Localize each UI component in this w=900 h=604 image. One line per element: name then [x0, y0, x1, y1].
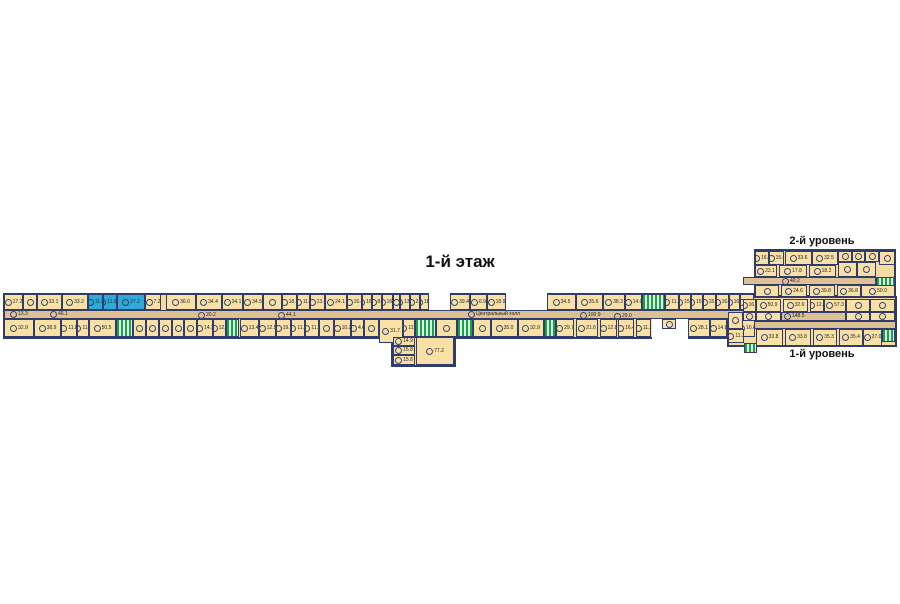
- room-number-icon: [213, 325, 218, 332]
- room: 15.6: [691, 294, 703, 310]
- room-area-label: 12.5: [267, 326, 276, 331]
- room-number-icon: [863, 266, 870, 273]
- room-number-icon: [884, 255, 891, 262]
- room-number-icon: [395, 347, 402, 354]
- room-area-label: 34.4: [208, 300, 218, 305]
- room-number-icon: [729, 299, 733, 306]
- room: 15.0: [769, 251, 784, 265]
- room-number-icon: [879, 302, 886, 309]
- room-area-label: 17.8: [792, 269, 802, 274]
- room: 15.5: [679, 294, 691, 310]
- room-number-icon: [468, 311, 475, 318]
- room-number-icon: [625, 299, 632, 306]
- room-number-icon: [855, 302, 862, 309]
- room: 8.5: [372, 294, 382, 310]
- room-number-icon: [765, 313, 772, 320]
- room-area-label: 15.6: [696, 300, 703, 305]
- room-number-icon: [426, 348, 433, 355]
- room-area-label: 35.4: [850, 335, 860, 340]
- room: 50.0: [861, 285, 895, 297]
- room-number-icon: [94, 325, 101, 332]
- room-area-label: 33.6: [798, 256, 808, 261]
- room: [133, 319, 146, 337]
- room-number-icon: [103, 299, 106, 306]
- room-number-icon: [605, 299, 612, 306]
- room: 36.8: [837, 285, 861, 297]
- room-number-icon: [488, 299, 495, 306]
- room-area-label: 11.5: [95, 300, 103, 305]
- room-number-icon: [297, 299, 302, 306]
- room: 12.5: [259, 319, 276, 337]
- room: 33.8: [785, 329, 811, 346]
- room: [473, 319, 491, 337]
- room-area-label: 27.0: [872, 335, 882, 340]
- room-area-label: 50.0: [877, 289, 887, 294]
- room-number-icon: [769, 255, 775, 262]
- room: [364, 319, 379, 337]
- room-area-label: 39.4: [459, 300, 469, 305]
- room: [159, 319, 172, 337]
- corridor-label: 20.2: [198, 312, 216, 319]
- corridor-label: 46.1: [50, 311, 68, 318]
- room-area-label: 32.6: [795, 303, 805, 308]
- room-number-icon: [410, 299, 415, 306]
- room: 35.0: [491, 319, 518, 337]
- room-area-label: 33.8: [769, 335, 779, 340]
- room: [662, 319, 676, 329]
- room: 13.8: [400, 294, 410, 310]
- room-number-icon: [224, 299, 231, 306]
- room-area-label: 38.3: [613, 300, 623, 305]
- room-number-icon: [420, 299, 423, 306]
- room: 11.8: [61, 319, 77, 337]
- room-area-label: 11.2: [671, 300, 679, 305]
- room-area-label: 15.5: [684, 300, 691, 305]
- room: 10.2: [334, 319, 351, 337]
- room-number-icon: [175, 325, 182, 332]
- stairs: [642, 294, 665, 310]
- stairs: [226, 319, 239, 337]
- room: 16.4: [618, 319, 634, 337]
- room-number-icon: [305, 325, 310, 332]
- room-number-icon: [757, 268, 764, 275]
- room-area-label: 77.2: [434, 349, 444, 354]
- room-number-icon: [869, 288, 876, 295]
- room-number-icon: [691, 299, 695, 306]
- room-area-label: 11.8: [68, 326, 77, 331]
- room-highlighted[interactable]: 11.8/1: [103, 294, 117, 310]
- room-area-label: 11.7: [424, 300, 429, 305]
- room-number-icon: [580, 312, 587, 319]
- room-area-label: 50.5: [102, 326, 112, 331]
- room-number-icon: [703, 299, 708, 306]
- room-number-icon: [50, 311, 57, 318]
- room: [857, 262, 876, 277]
- room-area-label: 29.7: [564, 326, 574, 331]
- room: 22.1: [755, 265, 777, 277]
- room-area-label: 15.0: [776, 256, 784, 261]
- room-number-icon: [471, 299, 478, 306]
- room-number-icon: [66, 299, 73, 306]
- room-highlighted[interactable]: 11.5: [88, 294, 103, 310]
- room-area-label: 13.5: [317, 300, 325, 305]
- room: [846, 312, 870, 321]
- room-area-label: 31.7: [390, 329, 400, 334]
- room-area-label: 18.3: [289, 300, 297, 305]
- room-number-icon: [710, 325, 717, 332]
- room-number-icon: [666, 321, 673, 328]
- room-number-icon: [347, 299, 353, 306]
- room: 17.2: [4, 294, 23, 310]
- room-area-label: 16.4: [354, 300, 362, 305]
- room: 2.5: [410, 294, 420, 310]
- room-number-icon: [443, 325, 450, 332]
- corridor-area-label: 29.0: [622, 314, 632, 319]
- room-area-label: 35.0: [504, 326, 514, 331]
- room-area-label: 57.3: [834, 303, 844, 308]
- room-area-label: 16.4: [625, 326, 634, 331]
- room: 24.1: [325, 294, 347, 310]
- room-number-icon: [760, 302, 767, 309]
- room: [846, 299, 870, 312]
- corridor-label: 13.3: [10, 311, 28, 318]
- corridor-area-label: 148.5: [792, 314, 805, 319]
- room-area-label: 22.1: [765, 269, 775, 274]
- room-area-label: 35.3: [824, 335, 834, 340]
- room-area-label: 6.9: [479, 300, 486, 305]
- room-number-icon: [556, 325, 563, 332]
- room: 15.8: [393, 346, 415, 355]
- room-number-icon: [869, 253, 876, 260]
- room: 32.9: [518, 319, 544, 337]
- room-area-label: 32.9: [18, 326, 28, 331]
- room-area-label: 24.1: [335, 300, 345, 305]
- room-number-icon: [146, 299, 153, 306]
- room: 11.2: [291, 319, 305, 337]
- room: 11.7: [305, 319, 319, 337]
- room: 12.5: [213, 319, 226, 337]
- room: 29.7: [556, 319, 574, 337]
- room: [436, 319, 457, 337]
- room-number-icon: [842, 253, 849, 260]
- room: 7.2: [145, 294, 161, 310]
- room: 36.0: [166, 294, 196, 310]
- room-number-icon: [122, 299, 129, 306]
- room: 33.2: [62, 294, 88, 310]
- room-number-icon: [816, 255, 823, 262]
- room: 38.3: [603, 294, 625, 310]
- room-number-icon: [323, 325, 330, 332]
- room-number-icon: [496, 325, 503, 332]
- room: 16.4: [347, 294, 362, 310]
- room: [728, 312, 743, 329]
- room: 33.1: [37, 294, 62, 310]
- room: [870, 312, 895, 321]
- corridor: [4, 310, 756, 319]
- room-number-icon: [244, 299, 251, 306]
- room-number-icon: [732, 317, 739, 324]
- room: 11.9: [297, 294, 310, 310]
- room: 11.3: [728, 329, 744, 343]
- room-area-label: 50.9: [768, 303, 778, 308]
- room: 32.9: [4, 319, 34, 337]
- room-number-icon: [39, 325, 46, 332]
- room-area-label: 37.2: [130, 300, 140, 305]
- room-number-icon: [755, 255, 760, 262]
- room: 11.2: [636, 319, 651, 337]
- room: 35.4: [839, 329, 863, 346]
- corridor-label: Центральный холл: [468, 311, 520, 318]
- room-number-icon: [88, 299, 94, 306]
- corridor: [743, 277, 876, 285]
- corridor-area-label: Центральный холл: [476, 312, 520, 317]
- room: 18.9: [487, 294, 506, 310]
- room: [865, 251, 879, 262]
- room-number-icon: [787, 302, 794, 309]
- room: 39.4: [450, 294, 470, 310]
- room-number-icon: [282, 299, 288, 306]
- room: [184, 319, 197, 337]
- room: 35.3: [813, 329, 837, 346]
- floor-plan: 17.233.133.211.511.8/137.27.236.034.434.…: [0, 0, 900, 604]
- room-number-icon: [581, 299, 588, 306]
- room-area-label: 38.9: [47, 326, 57, 331]
- room-area-label: 16.6: [746, 326, 755, 331]
- room-area-label: 19.1: [283, 326, 291, 331]
- room: 57.3: [824, 299, 846, 312]
- room: 18.2: [809, 265, 836, 277]
- room-number-icon: [362, 299, 365, 306]
- room-area-label: 11.2: [643, 326, 651, 331]
- room-number-icon: [813, 288, 820, 295]
- room: 11.2: [665, 294, 679, 310]
- room: 28.1: [688, 319, 710, 337]
- room-number-icon: [382, 299, 386, 306]
- room-area-label: 14.8: [718, 326, 727, 331]
- room-number-icon: [784, 268, 791, 275]
- room-area-label: 11.2: [297, 326, 305, 331]
- room-number-icon: [10, 325, 17, 332]
- room: 14.3: [197, 319, 213, 337]
- room: 13.4: [240, 319, 259, 337]
- room-number-icon: [77, 325, 81, 332]
- room-area-label: 33.8: [797, 335, 807, 340]
- room-area-label: 11.8/1: [107, 300, 117, 305]
- room-area-label: 32.9: [530, 326, 540, 331]
- room-number-icon: [855, 313, 862, 320]
- room-highlighted[interactable]: 37.2: [117, 294, 145, 310]
- room: 21.6: [576, 319, 598, 337]
- room-area-label: 18.2: [822, 269, 832, 274]
- room-number-icon: [636, 325, 642, 332]
- room: [838, 251, 852, 262]
- room-area-label: 15.1: [709, 300, 716, 305]
- room-area-label: 34.5: [561, 300, 571, 305]
- room-area-label: 12.5: [219, 326, 226, 331]
- room-number-icon: [864, 334, 871, 341]
- room-number-icon: [27, 299, 34, 306]
- room-number-icon: [716, 299, 721, 306]
- room-number-icon: [690, 325, 697, 332]
- room-number-icon: [351, 325, 357, 332]
- room-area-label: 32.5: [824, 256, 834, 261]
- room: 32.6: [783, 299, 808, 312]
- room: 16.1: [755, 251, 769, 265]
- corridor-area-label: 13.3: [18, 312, 28, 317]
- room-area-label: 11.9: [303, 300, 310, 305]
- room: [870, 299, 895, 312]
- room-number-icon: [879, 313, 886, 320]
- room: 33.6: [785, 251, 812, 265]
- room-area-label: 35.6: [589, 300, 599, 305]
- room-number-icon: [810, 302, 815, 309]
- room-number-icon: [372, 299, 377, 306]
- room: 15.8: [393, 355, 415, 365]
- room: 6.9: [470, 294, 487, 310]
- room: [852, 251, 865, 262]
- room: [319, 319, 334, 337]
- room-number-icon: [814, 268, 821, 275]
- room-number-icon: [10, 311, 17, 318]
- room-number-icon: [200, 299, 207, 306]
- room: 16.4: [743, 299, 756, 312]
- room-number-icon: [278, 312, 285, 319]
- room-area-label: 14.0: [633, 300, 642, 305]
- room: 12.2: [810, 299, 824, 312]
- opening: [506, 293, 547, 310]
- room-number-icon: [600, 325, 607, 332]
- room-number-icon: [784, 313, 791, 320]
- room-number-icon: [291, 325, 296, 332]
- room-area-label: 17.2: [13, 300, 23, 305]
- stairs: [415, 319, 436, 337]
- room: 34.5: [547, 294, 576, 310]
- corridor-area-label: 100.9: [588, 313, 601, 318]
- room-number-icon: [789, 334, 796, 341]
- room-number-icon: [785, 288, 792, 295]
- room: 34.1: [222, 294, 243, 310]
- stairs: [116, 319, 133, 337]
- room-number-icon: [269, 299, 276, 306]
- room-number-icon: [842, 334, 849, 341]
- room-number-icon: [826, 302, 833, 309]
- room-area-label: 36.8: [848, 289, 858, 294]
- room: 34.5: [243, 294, 263, 310]
- room: 32.5: [812, 251, 838, 265]
- room-number-icon: [61, 325, 67, 332]
- room-number-icon: [403, 325, 407, 332]
- room: 4.6: [351, 319, 364, 337]
- room: [838, 262, 857, 277]
- room-number-icon: [451, 299, 458, 306]
- room: 18.3: [282, 294, 297, 310]
- room: 16.3: [729, 294, 740, 310]
- room-number-icon: [259, 325, 266, 332]
- room-area-label: 39.8: [821, 289, 831, 294]
- room: 16.4: [362, 294, 372, 310]
- room-number-icon: [614, 313, 621, 320]
- room-number-icon: [241, 325, 248, 332]
- room-number-icon: [553, 299, 560, 306]
- room-area-label: 21.6: [586, 326, 596, 331]
- room: 14.8: [710, 319, 727, 337]
- room-number-icon: [198, 312, 205, 319]
- room-area-label: 16.1: [722, 300, 729, 305]
- room: 35.6: [576, 294, 603, 310]
- room: 11.5: [403, 319, 415, 337]
- room: 33.8: [756, 329, 783, 346]
- room: 17.8: [779, 265, 807, 277]
- room-area-label: 16.4: [749, 303, 756, 308]
- room-area-label: 11.3: [735, 334, 744, 339]
- room: [755, 285, 779, 297]
- floor-plan-canvas: 1-й этаж 2-й уровень 1-й уровень 17.233.…: [0, 0, 900, 604]
- room: 11.7: [420, 294, 429, 310]
- room-number-icon: [728, 333, 734, 340]
- room: [879, 251, 895, 265]
- room-area-label: 14.9: [403, 339, 413, 344]
- room-number-icon: [679, 299, 683, 306]
- room: 14.9: [393, 337, 415, 346]
- stairs: [882, 329, 895, 342]
- room-area-label: 15.8: [403, 358, 413, 363]
- room-number-icon: [382, 328, 389, 335]
- room-area-label: 34.1: [232, 300, 242, 305]
- room: [263, 294, 282, 310]
- corridor-area-label: 40.2: [790, 279, 800, 284]
- room: 16.4: [382, 294, 393, 310]
- room-number-icon: [172, 299, 179, 306]
- room-area-label: 28.1: [698, 326, 708, 331]
- room-number-icon: [790, 255, 797, 262]
- room-number-icon: [197, 325, 203, 332]
- room: 16.1: [716, 294, 729, 310]
- room-number-icon: [764, 288, 771, 295]
- room-number-icon: [276, 325, 282, 332]
- room: 14.0: [625, 294, 642, 310]
- room-number-icon: [816, 334, 823, 341]
- room-area-label: 18.9: [496, 300, 506, 305]
- room: 77.2: [416, 337, 454, 365]
- room-area-label: 33.2: [74, 300, 84, 305]
- room-number-icon: [400, 299, 403, 306]
- room-number-icon: [618, 325, 624, 332]
- room-area-label: 11.2: [82, 326, 89, 331]
- room-area-label: 11.7: [311, 326, 319, 331]
- room: 34.4: [196, 294, 222, 310]
- room: 50.5: [89, 319, 116, 337]
- room-area-label: 24.6: [793, 289, 803, 294]
- corridor-label: 40.2: [782, 278, 800, 285]
- room: 24.6: [781, 285, 807, 297]
- room-area-label: 34.5: [252, 300, 262, 305]
- room: 13.5: [310, 294, 325, 310]
- opening: [429, 293, 450, 310]
- room-number-icon: [395, 357, 402, 364]
- room-number-icon: [162, 325, 169, 332]
- room-number-icon: [136, 325, 143, 332]
- room: 15.1: [703, 294, 716, 310]
- room: [756, 312, 781, 321]
- room: [23, 294, 37, 310]
- room: 11.2: [77, 319, 89, 337]
- room: 39.8: [809, 285, 835, 297]
- room-number-icon: [187, 325, 194, 332]
- corridor-area-label: 46.1: [58, 312, 68, 317]
- room-area-label: 10.2: [342, 326, 351, 331]
- room-area-label: 14.3: [204, 326, 213, 331]
- room-area-label: 15.8: [403, 348, 413, 353]
